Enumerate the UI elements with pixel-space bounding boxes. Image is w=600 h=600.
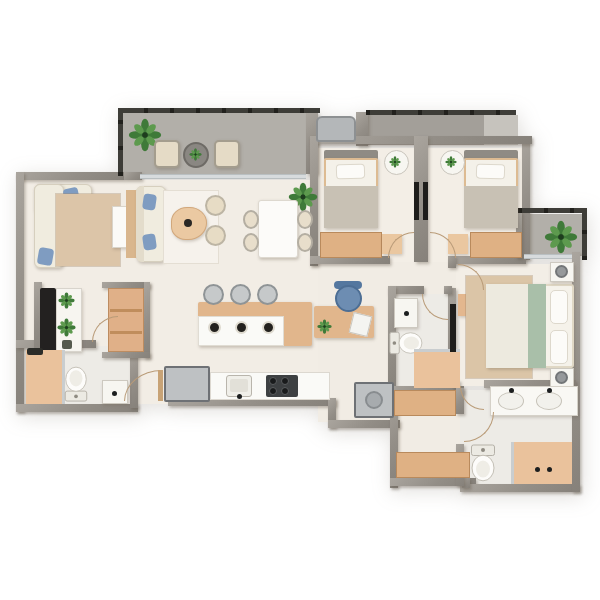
pouf (205, 195, 226, 216)
dining-chair (297, 233, 313, 252)
balcony-armchair-right (214, 140, 240, 168)
railing-balcony-master-right (582, 208, 587, 260)
stove-burner (281, 387, 289, 395)
master-bed-pillow (550, 330, 568, 364)
bar-stool (203, 284, 224, 305)
entrance-door-leaf (158, 370, 163, 401)
rug-living-tan (56, 194, 120, 266)
bed3-blanket (464, 186, 518, 228)
pouf (205, 225, 226, 246)
railing-balcony-main-top (118, 108, 320, 113)
fridge (164, 366, 210, 402)
desk-plant (317, 319, 332, 334)
guest-toilet (62, 366, 90, 402)
bed2-pillow (336, 163, 366, 179)
master-lamp (555, 371, 568, 384)
wall-bedroom3-east (522, 136, 530, 260)
washing-machine-door (365, 391, 383, 409)
railing-balcony-master-top (518, 208, 584, 213)
place-setting (235, 321, 248, 334)
wall-master-bath-bottom (460, 484, 580, 492)
apartment-floor-plan (0, 0, 600, 600)
place-setting (208, 321, 221, 334)
wall-pantry-right (144, 282, 150, 358)
bed2-wardrobe (320, 232, 382, 258)
office-chair (335, 285, 362, 312)
wall-guest-bath-bottom (16, 404, 138, 412)
bath2-shower-floor (414, 352, 460, 388)
tv-console-entry (40, 288, 56, 352)
dressing-wardrobe-bottom (396, 452, 470, 478)
sofa-pillow-blue (37, 247, 55, 266)
master-bath-sink (498, 392, 524, 410)
master-bath-faucet (547, 388, 552, 393)
kitchen-faucet (237, 394, 242, 399)
master-shower-glass (511, 442, 514, 484)
bed3-wardrobe (470, 232, 522, 258)
railing-balcony-main-left (118, 108, 123, 176)
master-tv (450, 304, 456, 352)
master-bath-faucet (509, 388, 514, 393)
wall-pantry-bottom (102, 352, 150, 358)
sliding-door-master-balcony (524, 254, 572, 259)
bar-stool (230, 284, 251, 305)
bed2-tv (414, 182, 419, 220)
ac-unit (316, 116, 356, 142)
pantry-shelf-line (110, 309, 142, 312)
kitchen-sink-basin (230, 379, 248, 392)
bar-stool (257, 284, 278, 305)
dressing-wardrobe-top (394, 390, 456, 416)
dining-table (258, 200, 298, 258)
sofa-pillow-blue (142, 193, 157, 211)
coffee-table-decor (184, 219, 192, 227)
stove-burner (269, 377, 277, 385)
guest-shower-fixture (27, 348, 43, 355)
master-bed-throw (528, 284, 546, 368)
master-shower-floor (514, 442, 572, 484)
bed3-tv (423, 182, 428, 220)
bed3-pillow (476, 163, 506, 179)
dining-chair (297, 210, 313, 229)
balcony-table-plant (189, 148, 202, 161)
master-toilet (468, 444, 498, 482)
master-shower-drain (535, 467, 540, 472)
entry-shelf-decor (62, 340, 72, 349)
stove-burner (269, 387, 277, 395)
dining-chair (243, 210, 259, 229)
master-bed-pillow (550, 290, 568, 324)
railing-balcony-bedrooms (366, 110, 516, 115)
guest-shower-floor (26, 350, 62, 404)
master-balcony-plant (544, 220, 578, 254)
bed2-nightstand-plant (389, 156, 401, 168)
stove-burner (281, 377, 289, 385)
wall-outer-left (16, 172, 24, 412)
entry-shelf-plant (57, 318, 76, 337)
master-bed-duvet (486, 284, 530, 368)
place-setting (262, 321, 275, 334)
wall-living-top (16, 172, 124, 180)
entry-shelf-plant (58, 292, 75, 309)
guest-vanity-faucet (112, 391, 117, 396)
bed2-blanket (324, 186, 378, 228)
bed3-nightstand-plant (445, 156, 457, 168)
master-shower-drain (547, 467, 552, 472)
master-bath-sink (536, 392, 562, 410)
bath2-faucet (404, 311, 409, 316)
balcony-armchair-left (154, 140, 180, 168)
sofa-pillow-blue (142, 233, 157, 251)
wall-bathroom2-north-b (444, 286, 452, 294)
dining-chair (243, 233, 259, 252)
sliding-door-living-balcony (140, 174, 306, 179)
floor-plan-screenshot (0, 0, 600, 600)
master-lamp (555, 265, 568, 278)
